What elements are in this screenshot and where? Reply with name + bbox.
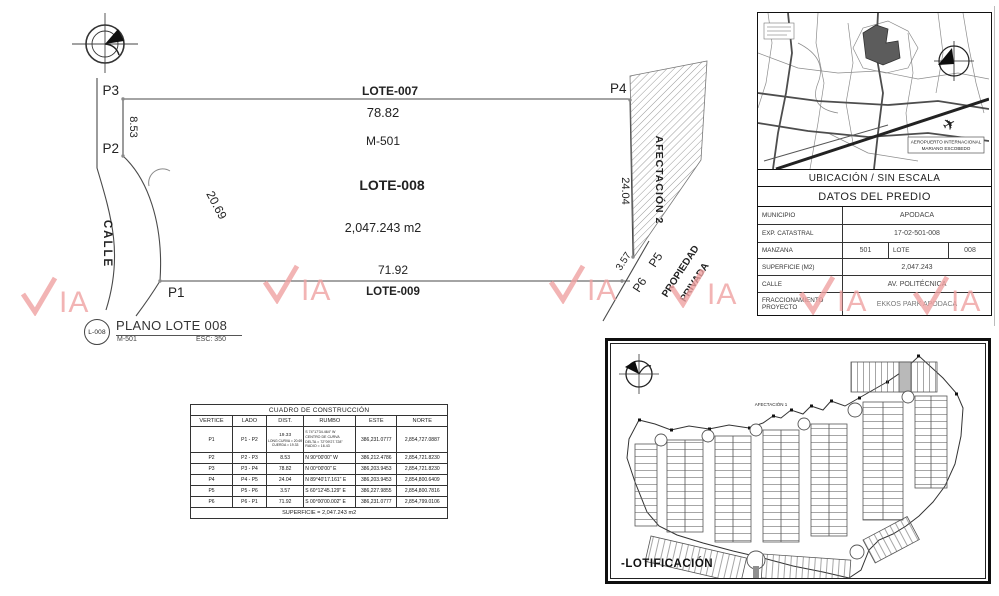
dim-bottom: 71.92 xyxy=(378,263,408,277)
point-label-p5: P5 xyxy=(646,250,666,270)
airport-icon: ✈ xyxy=(940,115,960,136)
table-row: P6 P6 - P1 71.92 S 00°00'00.002" E 386,2… xyxy=(191,497,448,508)
location-panel: ✈ AEROPUERTO INTERNACIONAL MARIANO ESCOB… xyxy=(757,12,992,316)
sheet-ref: L-008 xyxy=(88,329,106,336)
construction-table-footer: SUPERFICIE = 2,047.243 m2 xyxy=(191,508,448,519)
datos-row-exp-catastral: EXP. CATASTRAL 17-02-501-008 xyxy=(758,225,991,243)
airport-label-line1: AEROPUERTO INTERNACIONAL xyxy=(911,140,982,145)
sheet-edge-line xyxy=(994,6,995,326)
lotification-frame: AFECTACIÓN 1 -LOTIFICACIÓN xyxy=(610,343,986,579)
dim-left: 8.53 xyxy=(127,116,139,137)
manzana-label: M-501 xyxy=(366,134,400,148)
svg-text:✈: ✈ xyxy=(940,115,960,136)
street-map-graphic: ✈ AEROPUERTO INTERNACIONAL MARIANO ESCOB… xyxy=(758,13,989,169)
lotification-panel: AFECTACIÓN 1 -LOTIFICACIÓN xyxy=(605,338,991,584)
point-label-p6: P6 xyxy=(630,275,650,295)
dim-curve: 20.69 xyxy=(203,189,230,222)
map-caption: UBICACIÓN / SIN ESCALA xyxy=(758,170,991,187)
lote-007-label: LOTE-007 xyxy=(362,84,418,98)
construction-table-header: VERTICE LADO DIST. RUMBO ESTE NORTE xyxy=(191,416,448,427)
street-label-calle: CALLE xyxy=(101,220,113,268)
dim-diag: 3.57 xyxy=(614,250,634,273)
north-arrow-icon xyxy=(72,13,138,73)
lotification-caption: -LOTIFICACIÓN xyxy=(621,558,713,570)
datos-row-manzana-lote: MANZANA 501 LOTE 008 xyxy=(758,243,991,259)
plan-sheet: P3 P2 P1 P4 8.53 20.69 CALLE LOTE-007 78… xyxy=(0,0,999,596)
title-block-ref-circle: L-008 xyxy=(84,319,110,345)
highlighted-lot xyxy=(899,362,911,392)
lote-008-label: LOTE-008 xyxy=(359,177,425,193)
datos-row-calle: CALLE AV. POLITÉCNICA xyxy=(758,276,991,293)
afectacion-1-label: AFECTACIÓN 1 xyxy=(755,401,788,407)
predio-location-marker xyxy=(863,25,900,65)
datos-title: DATOS DEL PREDIO xyxy=(758,187,991,207)
table-row: P3 P3 - P4 78.82 N 00°00'00" E 386,203.9… xyxy=(191,464,448,475)
curve-arc-icon xyxy=(149,169,170,186)
point-label-p4: P4 xyxy=(610,81,627,96)
title-block-scale: ESC: 350 xyxy=(196,336,226,343)
location-map: ✈ AEROPUERTO INTERNACIONAL MARIANO ESCOB… xyxy=(758,13,991,170)
afectacion-2-label: AFECTACIÓN 2 xyxy=(653,136,666,225)
dim-right: 24.04 xyxy=(619,177,631,205)
point-label-p1: P1 xyxy=(168,285,185,300)
lotification-drawing: AFECTACIÓN 1 xyxy=(611,344,986,579)
point-label-p2: P2 xyxy=(102,141,119,156)
datos-row-superficie: SUPERFICIE (M2) 2,047.243 xyxy=(758,259,991,276)
table-row: P5 P5 - P6 3.57 S 60°12'45.129" E 386,22… xyxy=(191,486,448,497)
dim-top: 78.82 xyxy=(367,105,400,120)
plan-title: PLANO LOTE 008 xyxy=(116,318,242,336)
datos-row-fraccionamiento: FRACCIONAMIENTO PROYECTO EKKOS PARK APOD… xyxy=(758,293,991,315)
lote-009-label: LOTE-009 xyxy=(366,286,420,298)
table-row: P1 P1 - P2 19.33 LONG CURVA = 20.69 CUER… xyxy=(191,427,448,453)
lotification-north-icon xyxy=(619,354,659,394)
construction-table-title: CUADRO DE CONSTRUCCIÓN xyxy=(191,405,448,416)
construction-table: CUADRO DE CONSTRUCCIÓN VERTICE LADO DIST… xyxy=(190,404,448,519)
afectacion-2-hatch xyxy=(630,61,707,257)
area-label: 2,047.243 m2 xyxy=(345,221,421,235)
table-row: P2 P2 - P3 8.53 N 90°00'00" W 386,212.47… xyxy=(191,453,448,464)
datos-row-municipio: MUNICIPIO APODACA xyxy=(758,207,991,225)
street-stub xyxy=(753,566,759,578)
title-block-manzana: M-501 xyxy=(117,336,137,343)
highway-line xyxy=(776,99,989,169)
table-row: P4 P4 - P5 24.04 N 89°40'17.161" E 386,2… xyxy=(191,475,448,486)
point-label-p3: P3 xyxy=(102,83,119,98)
airport-label-line2: MARIANO ESCOBEDO xyxy=(922,146,971,151)
